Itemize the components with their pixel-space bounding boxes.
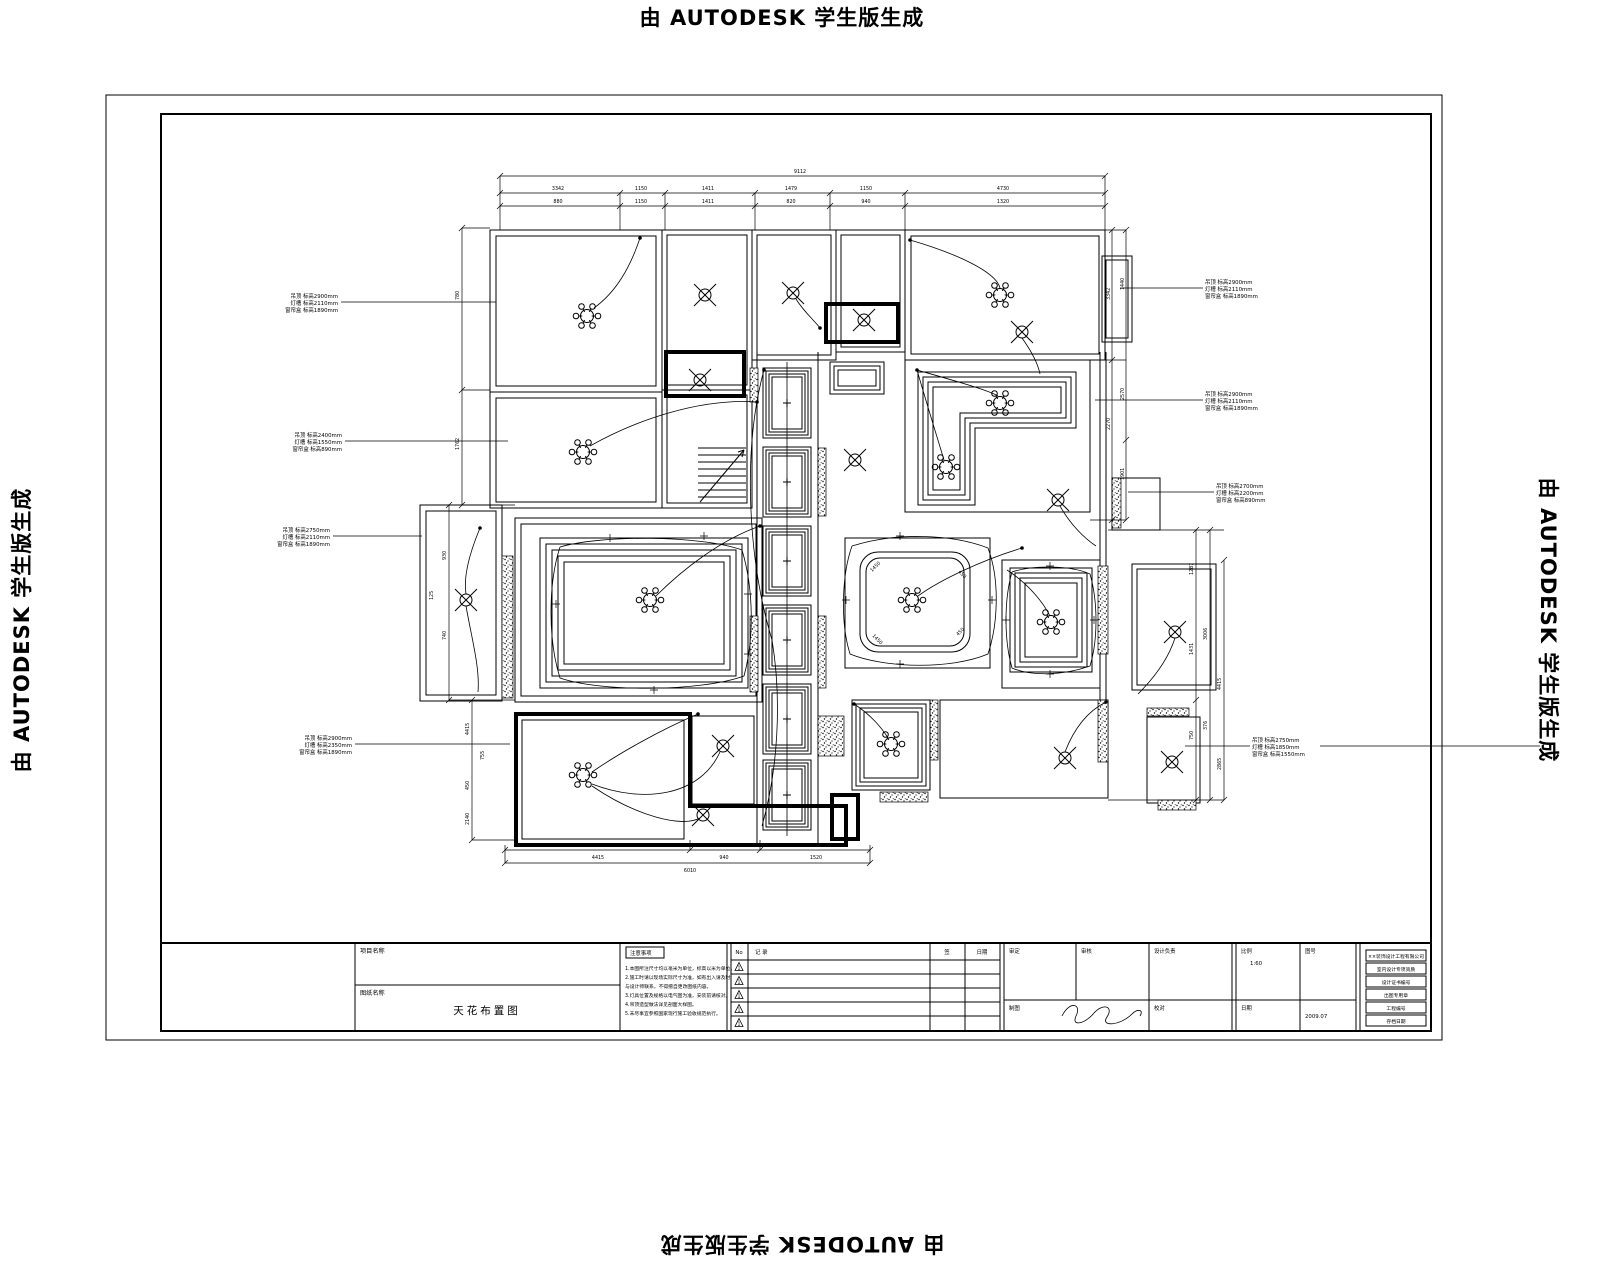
callout-right-4: 吊顶 标高2750mm 灯槽 标高1850mm 窗帘盒 标高1550mm [1185, 736, 1540, 758]
svg-text:图号: 图号 [1305, 947, 1316, 955]
revision-triangle-icon [735, 1005, 743, 1014]
svg-text:吊顶 标高2750mm: 吊顶 标高2750mm [283, 526, 331, 534]
svg-text:6010: 6010 [684, 868, 696, 874]
svg-text:9112: 9112 [794, 169, 806, 175]
revision-triangle-icon [735, 977, 743, 986]
svg-text:窗帘盒 标高1890mm: 窗帘盒 标高1890mm [1205, 404, 1258, 412]
svg-text:4.吊顶造型做法详见剖面大样图。: 4.吊顶造型做法详见剖面大样图。 [625, 1001, 697, 1008]
svg-text:1150: 1150 [860, 186, 872, 192]
outer-border [106, 95, 1442, 1040]
svg-text:吊顶 标高2700mm: 吊顶 标高2700mm [1216, 482, 1264, 490]
downlight-icon [694, 284, 716, 306]
dining-diagonal-dims: 1450 450 1450 450 [869, 561, 967, 647]
svg-text:灯槽 标高2110mm: 灯槽 标高2110mm [283, 533, 331, 541]
svg-text:450: 450 [465, 781, 471, 790]
svg-text:灯槽 标高2200mm: 灯槽 标高2200mm [1216, 489, 1264, 497]
svg-text:灯槽 标高2350mm: 灯槽 标高2350mm [305, 741, 353, 749]
svg-text:工程编号: 工程编号 [1386, 1005, 1405, 1012]
svg-text:4415: 4415 [592, 855, 604, 861]
svg-text:3.灯具位置及规格以电气图为准，安装前请核对。: 3.灯具位置及规格以电气图为准，安装前请核对。 [625, 992, 730, 999]
downlight-icon [689, 369, 711, 391]
svg-text:审定: 审定 [1009, 947, 1020, 955]
downlight-icon [853, 309, 875, 331]
svg-text:2140: 2140 [465, 813, 471, 825]
right-coffer-room [1010, 568, 1092, 672]
svg-text:1520: 1520 [810, 855, 822, 861]
svg-text:4415: 4415 [1217, 678, 1223, 690]
svg-text:1411: 1411 [702, 186, 714, 192]
drawing-name-cell: 项目名称 图纸名称 天花布置图 [355, 947, 620, 1017]
downlight-icon [1011, 321, 1033, 343]
date-value: 2009.07 [1305, 1014, 1327, 1020]
svg-text:940: 940 [719, 855, 728, 861]
svg-text:××装饰设计工程有限公司: ××装饰设计工程有限公司 [1368, 953, 1424, 960]
chandelier-icon [986, 283, 1014, 308]
cad-sheet-page: 由 AUTODESK 学生版生成 由 AUTODESK 学生版生成 由 AUTO… [0, 0, 1600, 1280]
svg-text:窗帘盒 标高890mm: 窗帘盒 标高890mm [293, 445, 342, 453]
callout-right-3: 吊顶 标高2700mm 灯槽 标高2200mm 窗帘盒 标高890mm [1128, 482, 1265, 504]
svg-text:780: 780 [455, 291, 461, 300]
callout-left-1: 吊顶 标高2900mm 灯槽 标高2110mm 窗帘盒 标高1890mm [285, 292, 496, 314]
bottom-center-coffer [852, 700, 930, 790]
notes-label: 注意事项 [630, 949, 652, 957]
svg-text:2270: 2270 [1106, 418, 1112, 430]
svg-text:存档日期: 存档日期 [1386, 1018, 1405, 1025]
drawing-title: 天花布置图 [453, 1004, 521, 1017]
svg-text:窗帘盒 标高1890mm: 窗帘盒 标高1890mm [1205, 292, 1258, 300]
svg-text:比例: 比例 [1241, 947, 1252, 955]
svg-text:窗帘盒 标高1550mm: 窗帘盒 标高1550mm [1252, 750, 1305, 758]
svg-text:设计负责: 设计负责 [1154, 947, 1176, 955]
callout-right-1: 吊顶 标高2900mm 灯槽 标高2110mm 窗帘盒 标高1890mm [1120, 278, 1258, 300]
callouts: 吊顶 标高2900mm 灯槽 标高2110mm 窗帘盒 标高1890mm 吊顶 … [277, 278, 1540, 758]
svg-text:376: 376 [1203, 721, 1209, 730]
downlight-icon [1161, 751, 1183, 773]
project-name-label: 项目名称 [360, 947, 385, 955]
notes-cell: 注意事项 1.本图所注尺寸均以毫米为单位，标高以米为单位。 2.施工时请以现场实… [625, 947, 735, 1017]
svg-text:3006: 3006 [1203, 628, 1209, 640]
svg-text:签: 签 [944, 948, 950, 956]
downlight-icon [712, 735, 734, 757]
svg-text:灯槽 标高2110mm: 灯槽 标高2110mm [1205, 285, 1253, 293]
svg-text:吊顶 标高2900mm: 吊顶 标高2900mm [291, 292, 339, 300]
svg-text:窗帘盒 标高890mm: 窗帘盒 标高890mm [1216, 496, 1265, 504]
scale-value: 1:60 [1250, 961, 1263, 967]
svg-text:记 录: 记 录 [755, 948, 768, 956]
svg-text:吊顶 标高2400mm: 吊顶 标高2400mm [295, 431, 343, 439]
chandelier-icon [573, 304, 601, 329]
chandelier-icon [932, 455, 960, 480]
svg-text:灯槽 标高2110mm: 灯槽 标高2110mm [291, 299, 339, 307]
svg-text:450: 450 [957, 569, 968, 580]
dimensions-left: 780 1762 930 740 125 4415 450 2140 755 [429, 225, 516, 843]
svg-text:750: 750 [1189, 731, 1195, 740]
callout-left-4: 吊顶 标高2900mm 灯槽 标高2350mm 窗帘盒 标高1890mm [299, 734, 510, 756]
svg-text:日期: 日期 [977, 949, 988, 956]
svg-text:校对: 校对 [1154, 1004, 1165, 1012]
small-top-coffer [830, 362, 884, 394]
svg-text:吊顶 标高2900mm: 吊顶 标高2900mm [1205, 390, 1253, 398]
drawing-name-label: 图纸名称 [360, 989, 385, 997]
svg-text:室内设计专项资质: 室内设计专项资质 [1377, 966, 1416, 973]
svg-text:日期: 日期 [1241, 1005, 1252, 1012]
callout-left-2: 吊顶 标高2400mm 灯槽 标高1550mm 窗帘盒 标高890mm [293, 431, 508, 453]
svg-text:5.未尽事宜参照国家现行施工验收规范执行。: 5.未尽事宜参照国家现行施工验收规范执行。 [625, 1010, 721, 1017]
chandelier-icon [569, 440, 597, 465]
chandelier-icons [569, 283, 1065, 788]
svg-text:1431: 1431 [1189, 643, 1195, 655]
chandelier-icon [636, 588, 664, 613]
downlight-icon [782, 282, 804, 304]
svg-text:4730: 4730 [997, 186, 1009, 192]
svg-text:820: 820 [786, 199, 795, 205]
svg-text:880: 880 [553, 199, 562, 205]
svg-text:2.施工时请以现场实际尺寸为准，如有出入请及时: 2.施工时请以现场实际尺寸为准，如有出入请及时 [625, 974, 731, 981]
staircase [698, 448, 746, 502]
revision-table: No 记 录 签 日期 [731, 943, 1000, 1031]
svg-text:1320: 1320 [997, 199, 1009, 205]
svg-text:窗帘盒 标高1890mm: 窗帘盒 标高1890mm [277, 540, 330, 548]
chandelier-icon [569, 763, 597, 788]
svg-text:1450: 1450 [869, 561, 882, 574]
ceiling-plan: 1450 450 1450 450 [420, 230, 1216, 845]
signature-block: 审定 审核 设计负责 比例 图号 制图 校对 日期 1:60 2009.07 [1004, 943, 1356, 1031]
master-bedroom-thick-outline [516, 714, 846, 845]
svg-text:1150: 1150 [635, 186, 647, 192]
svg-text:1.本图所注尺寸均以毫米为单位，标高以米为单位。: 1.本图所注尺寸均以毫米为单位，标高以米为单位。 [625, 965, 735, 972]
revision-triangle-icon [735, 1019, 743, 1028]
downlight-icon [1054, 747, 1076, 769]
chandelier-icon [898, 588, 926, 613]
svg-text:755: 755 [480, 751, 486, 760]
svg-text:灯槽 标高1550mm: 灯槽 标高1550mm [295, 438, 343, 446]
living-room-coffer [540, 538, 748, 688]
company-stamp-stack: ××装饰设计工程有限公司 室内设计专项资质 设计证书编号 出图专用章 工程编号 … [1366, 950, 1426, 1026]
svg-text:吊顶 标高2900mm: 吊顶 标高2900mm [1205, 278, 1253, 286]
svg-text:No: No [735, 950, 742, 956]
svg-text:灯槽 标高1850mm: 灯槽 标高1850mm [1252, 743, 1300, 751]
svg-text:窗帘盒 标高1890mm: 窗帘盒 标高1890mm [285, 306, 338, 314]
svg-text:1411: 1411 [702, 199, 714, 205]
svg-text:125: 125 [429, 591, 435, 600]
svg-text:1150: 1150 [635, 199, 647, 205]
titleblock: 项目名称 图纸名称 天花布置图 注意事项 1.本图所注尺寸均以毫米为单位，标高以… [161, 943, 1431, 1031]
svg-text:1762: 1762 [455, 438, 461, 450]
svg-text:1479: 1479 [785, 186, 797, 192]
signature-scribble [1062, 1005, 1141, 1023]
svg-text:吊顶 标高2900mm: 吊顶 标高2900mm [305, 734, 353, 742]
downlight-icon [1164, 621, 1186, 643]
drawing-canvas: 1 [0, 0, 1600, 1280]
svg-text:灯槽 标高2110mm: 灯槽 标高2110mm [1205, 397, 1253, 405]
svg-text:2865: 2865 [1217, 758, 1223, 770]
chandelier-icon [877, 732, 905, 757]
svg-text:1287: 1287 [1189, 563, 1195, 575]
chandelier-icon [1037, 610, 1065, 635]
svg-text:制图: 制图 [1009, 1004, 1020, 1012]
corridor-panels [763, 362, 811, 836]
svg-text:2570: 2570 [1120, 388, 1126, 400]
revision-triangle-icon [735, 963, 743, 972]
svg-text:3342: 3342 [1106, 288, 1112, 300]
svg-text:窗帘盒 标高1890mm: 窗帘盒 标高1890mm [299, 748, 352, 756]
svg-text:审核: 审核 [1081, 947, 1092, 955]
svg-text:设计证书编号: 设计证书编号 [1382, 979, 1411, 986]
callout-left-3: 吊顶 标高2750mm 灯槽 标高2110mm 窗帘盒 标高1890mm [277, 526, 422, 548]
downlight-icon [844, 449, 866, 471]
svg-text:与设计师联系，不得擅自更改图纸内容。: 与设计师联系，不得擅自更改图纸内容。 [625, 983, 711, 990]
chandelier-icon [986, 391, 1014, 416]
revision-triangle-icon [735, 991, 743, 1000]
svg-text:4415: 4415 [465, 723, 471, 735]
inner-border [161, 114, 1431, 1031]
downlight-icon [1047, 489, 1069, 511]
svg-text:1901: 1901 [1120, 468, 1126, 480]
svg-text:930: 930 [442, 551, 448, 560]
svg-text:740: 740 [442, 631, 448, 640]
svg-text:940: 940 [861, 199, 870, 205]
dimensions-top: 9112 3342 1150 1411 1479 1150 4730 880 1… [497, 169, 1108, 230]
svg-text:3342: 3342 [552, 186, 564, 192]
callout-right-2: 吊顶 标高2900mm 灯槽 标高2110mm 窗帘盒 标高1890mm [1095, 390, 1258, 412]
svg-text:吊顶 标高2750mm: 吊顶 标高2750mm [1252, 736, 1300, 744]
svg-text:出图专用章: 出图专用章 [1384, 992, 1408, 999]
